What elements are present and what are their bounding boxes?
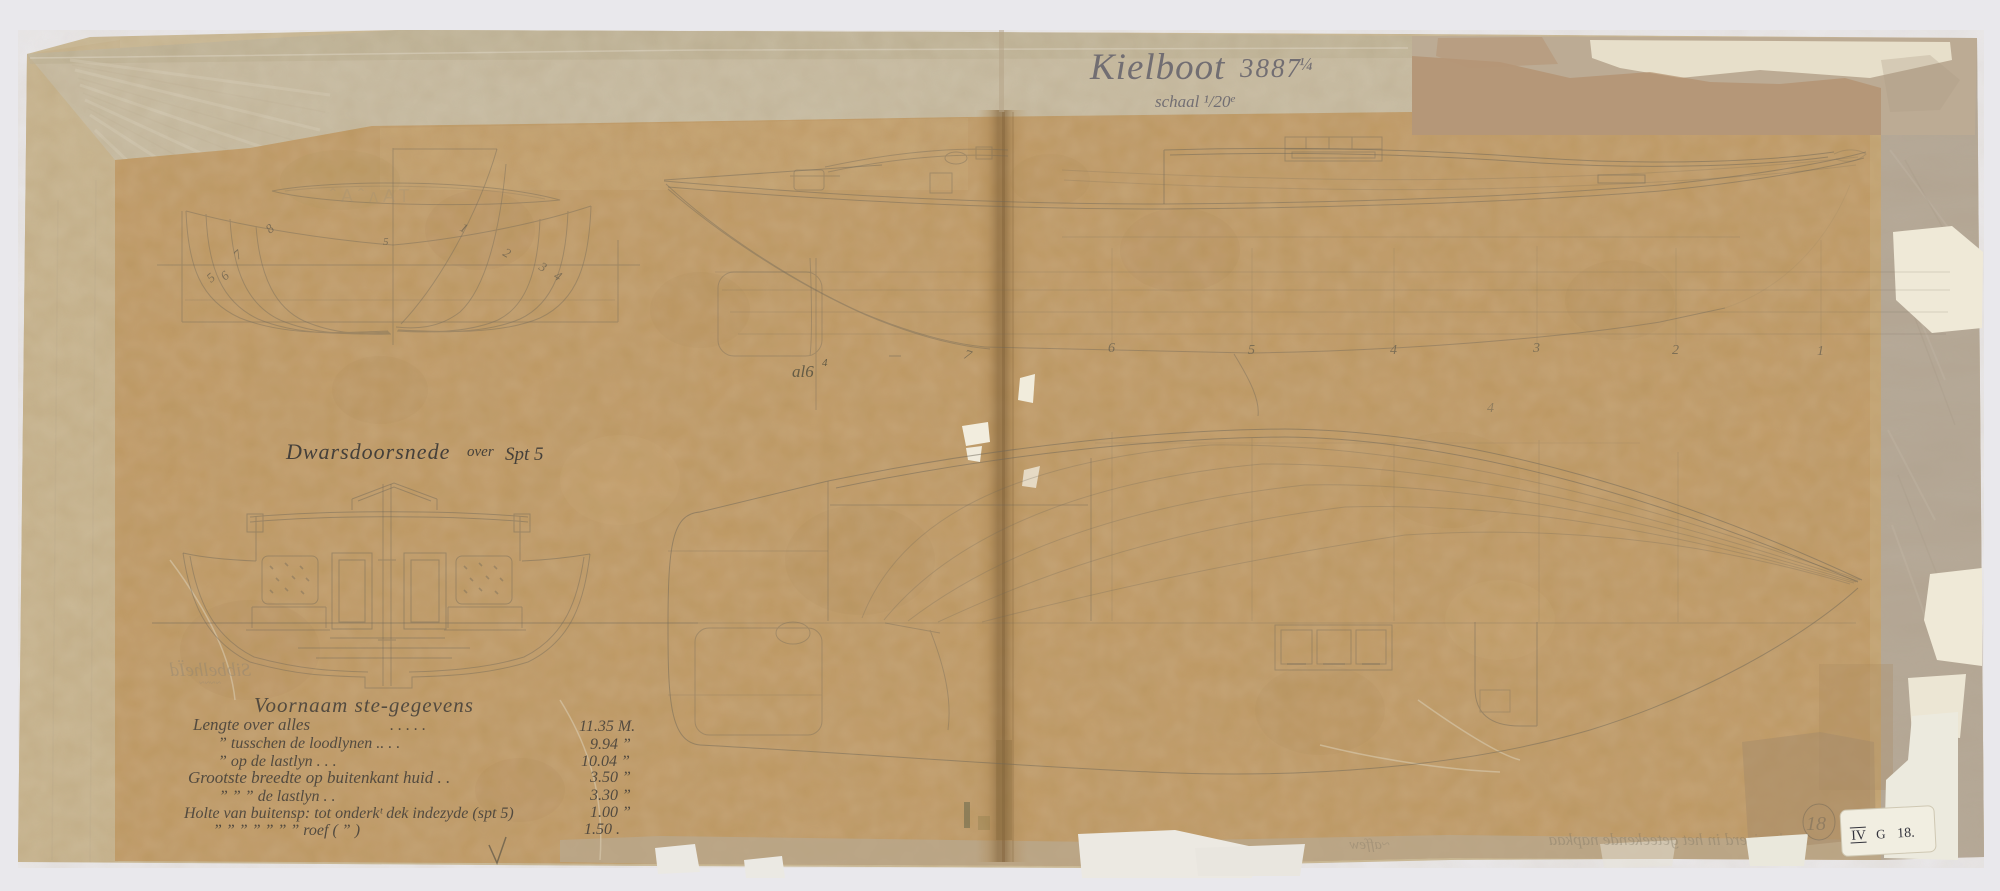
svg-text:5: 5 (1248, 343, 1255, 358)
svg-text:schaal ¹/20e: schaal ¹/20e (1155, 92, 1235, 111)
svg-text:over: over (467, 444, 494, 460)
svg-text:IV: IV (1851, 828, 1867, 844)
svg-text:10.04 ”: 10.04 ” (581, 753, 630, 770)
svg-text:ˆAˆʌAT: ˆAˆʌAT (330, 186, 415, 206)
svg-text:al6: al6 (792, 362, 814, 381)
svg-text:3.50 ”: 3.50 ” (589, 769, 631, 786)
svg-text:” ” ” ”: ” ” ” ” ” ” ” roef ( ” ) (213, 822, 360, 839)
svg-text:Holte van buitensp: tot onderk: Holte van buitensp: tot onderkᵗ dek inde… (183, 805, 514, 822)
svg-text:” tusschen de loodlynen ..: ” tusschen de loodlynen .. . . (218, 735, 400, 752)
svg-text:2: 2 (1672, 343, 1679, 358)
svg-text:¼: ¼ (1299, 54, 1313, 74)
svg-text:4: 4 (1487, 401, 1494, 416)
svg-text:~affe‌w: ~affe‌w (1349, 837, 1390, 853)
svg-text:1.50 .: 1.50 . (584, 821, 620, 838)
svg-text:3887: 3887 (1239, 53, 1302, 83)
svg-text:Lengte over alles: Lengte over alles (192, 715, 310, 734)
svg-text:. . . . .: . . . . . (390, 717, 426, 734)
svg-text:~~~~: ~~~~ (199, 678, 221, 689)
svg-text:6: 6 (1108, 341, 1115, 356)
svg-text:4: 4 (1390, 343, 1397, 358)
svg-text:1.00 ”: 1.00 ” (590, 804, 631, 821)
svg-text:18: 18 (1806, 813, 1826, 835)
svg-text:Dwarsdoorsnede: Dwarsdoorsnede (285, 439, 450, 464)
svg-text:1: 1 (1817, 344, 1824, 359)
svg-text:9.94 ”: 9.94 ” (590, 736, 631, 753)
svg-text:5: 5 (383, 236, 389, 248)
svg-text:3: 3 (1532, 341, 1540, 356)
svg-text:11.35 M.: 11.35 M. (579, 718, 635, 735)
svg-text:Grootste breedte op buitenkant: Grootste breedte op buitenkant huid . . (188, 768, 450, 787)
svg-text:Kielboot: Kielboot (1089, 47, 1226, 88)
svg-text:18.: 18. (1897, 826, 1915, 842)
svg-text:G: G (1876, 826, 1886, 841)
svg-text:Voornaam ste-gegevens: Voornaam ste-gegevens (254, 693, 474, 717)
svg-text:Spt 5: Spt 5 (505, 444, 544, 465)
svg-text:” ” ” de: ” ” ” de lastlyn . . (219, 788, 335, 805)
svg-text:3.30 ”: 3.30 ” (589, 787, 631, 804)
svg-text:4: 4 (822, 357, 828, 369)
